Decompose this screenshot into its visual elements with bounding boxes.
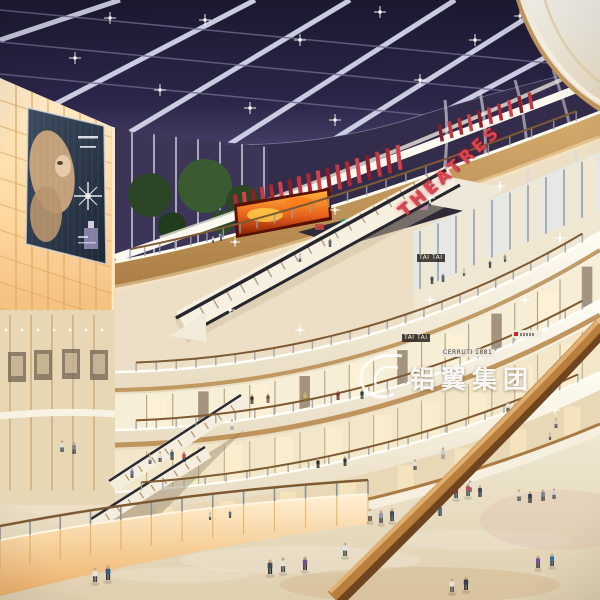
- shop-sign-cerruti: CERRUTI 1881: [441, 349, 494, 357]
- shop-sign-red-logo: [512, 330, 542, 338]
- watermark-text: 铝翼集团: [410, 360, 534, 396]
- mall-atrium-scene: [0, 0, 600, 600]
- shop-sign-tai-tai-lower: TAI TAI: [402, 334, 430, 342]
- vignette: [0, 0, 600, 600]
- red-logo-icon: [514, 332, 518, 336]
- illegible-sign-text: [520, 333, 534, 336]
- mall-atrium-rendering: THEATRES 铝翼集团 TAI TAI TAI TAI CERRUTI 18…: [0, 0, 600, 600]
- shop-sign-tai-tai-upper: TAI TAI: [417, 254, 445, 262]
